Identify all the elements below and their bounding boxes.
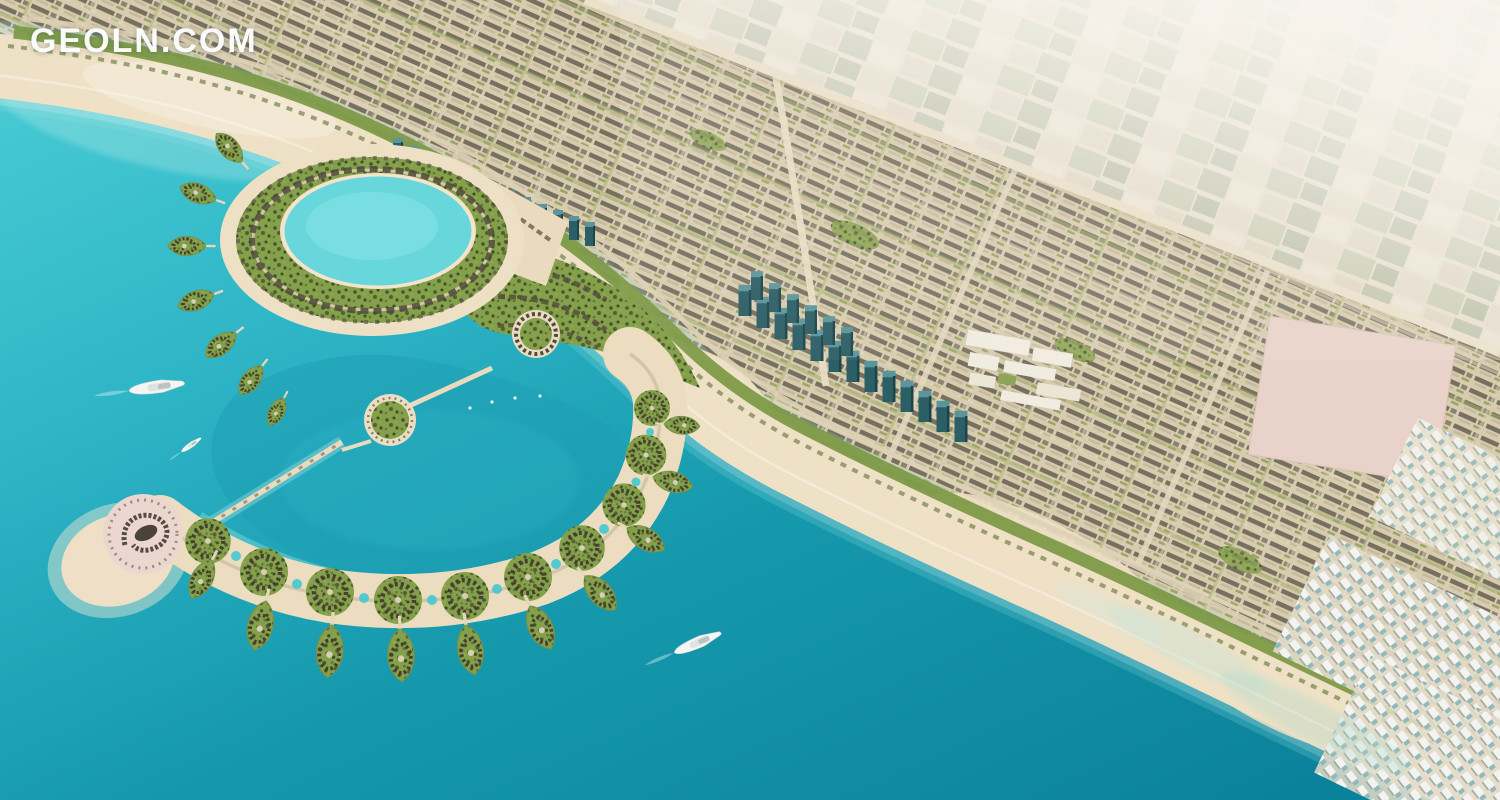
haze-overlay [620, 0, 1500, 360]
scene-canvas [0, 0, 1500, 800]
watermark: GEOLN.COM [30, 22, 258, 61]
spiral-plaza [103, 494, 183, 574]
aerial-render: GEOLN.COM [0, 0, 1500, 800]
